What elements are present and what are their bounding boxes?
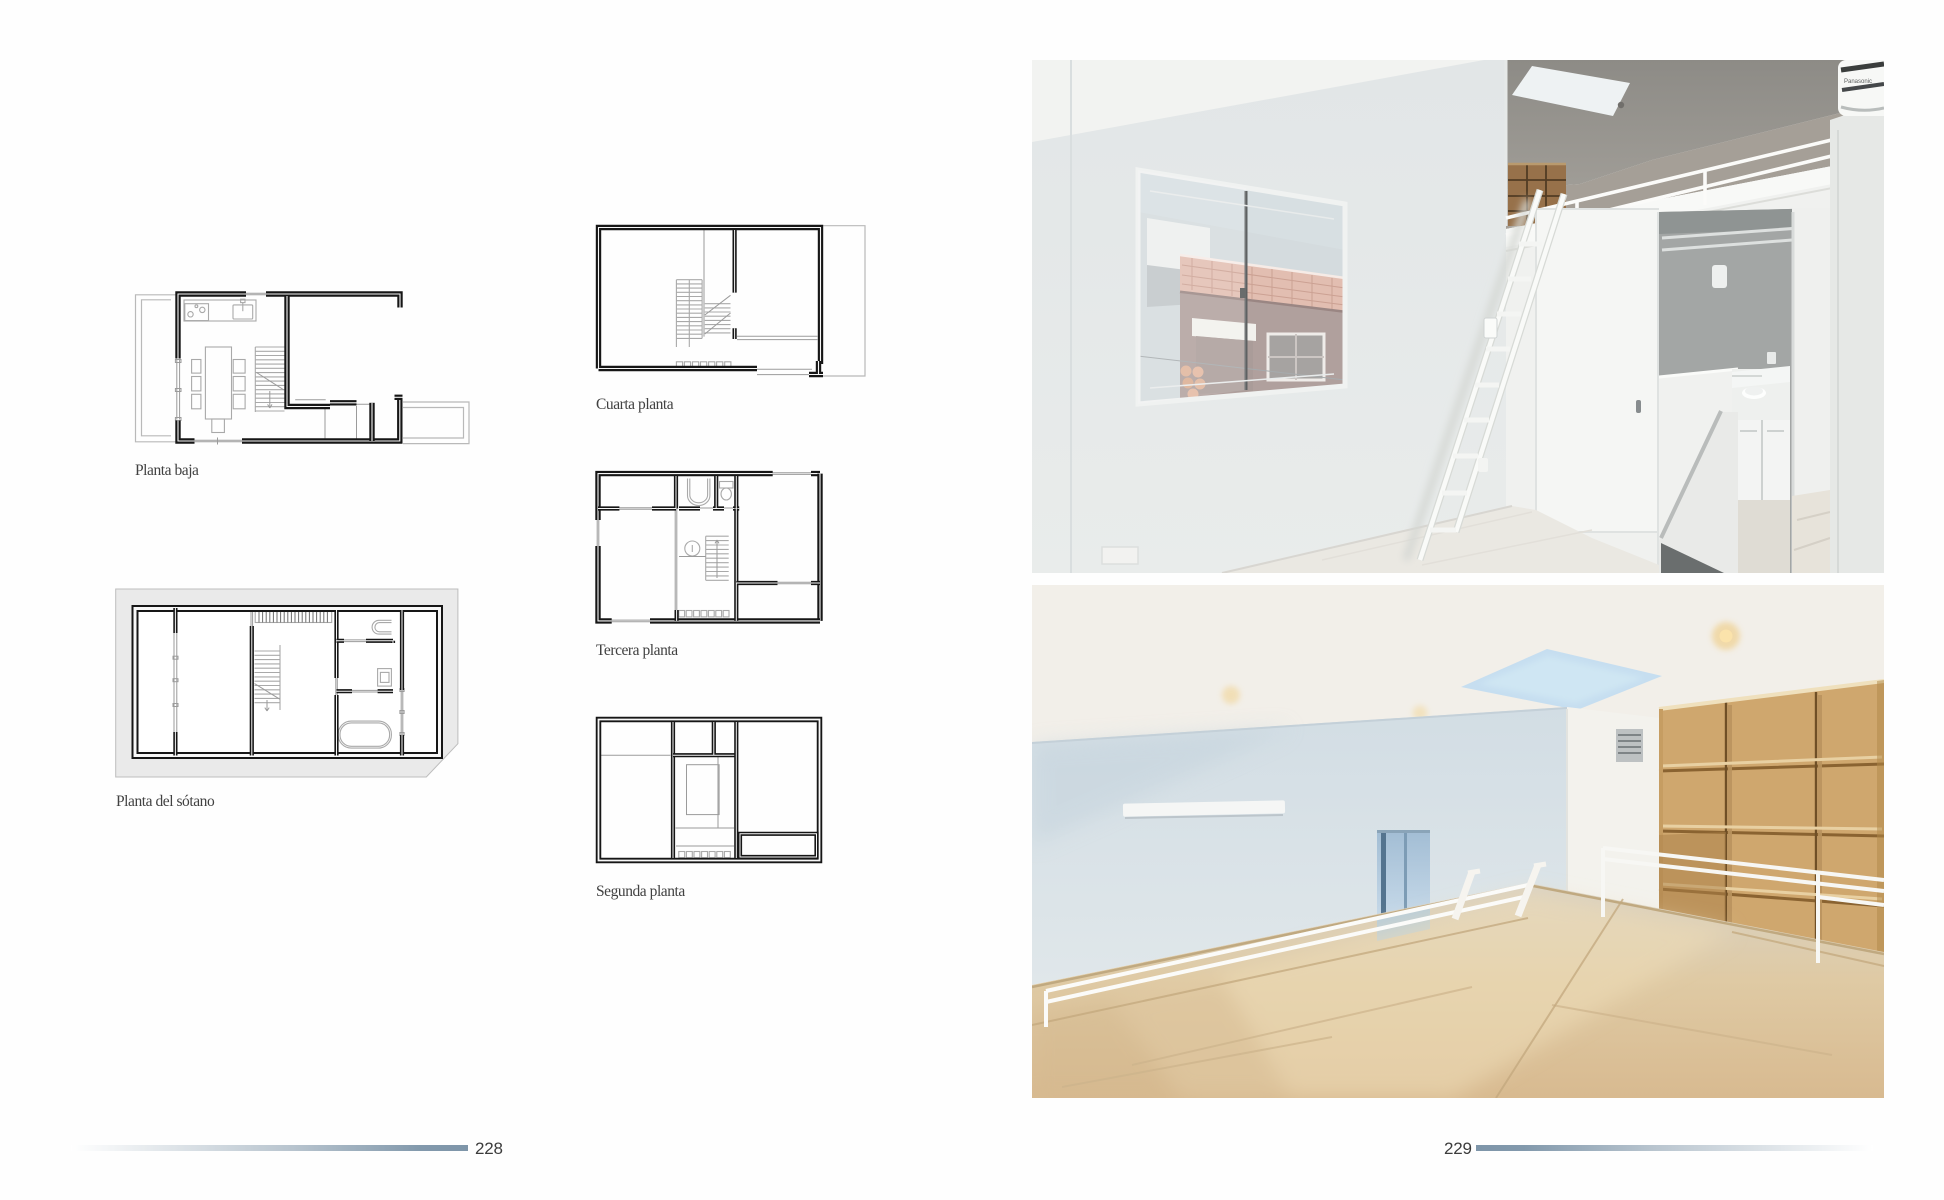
svg-text:Panasonic: Panasonic [1844,79,1872,85]
